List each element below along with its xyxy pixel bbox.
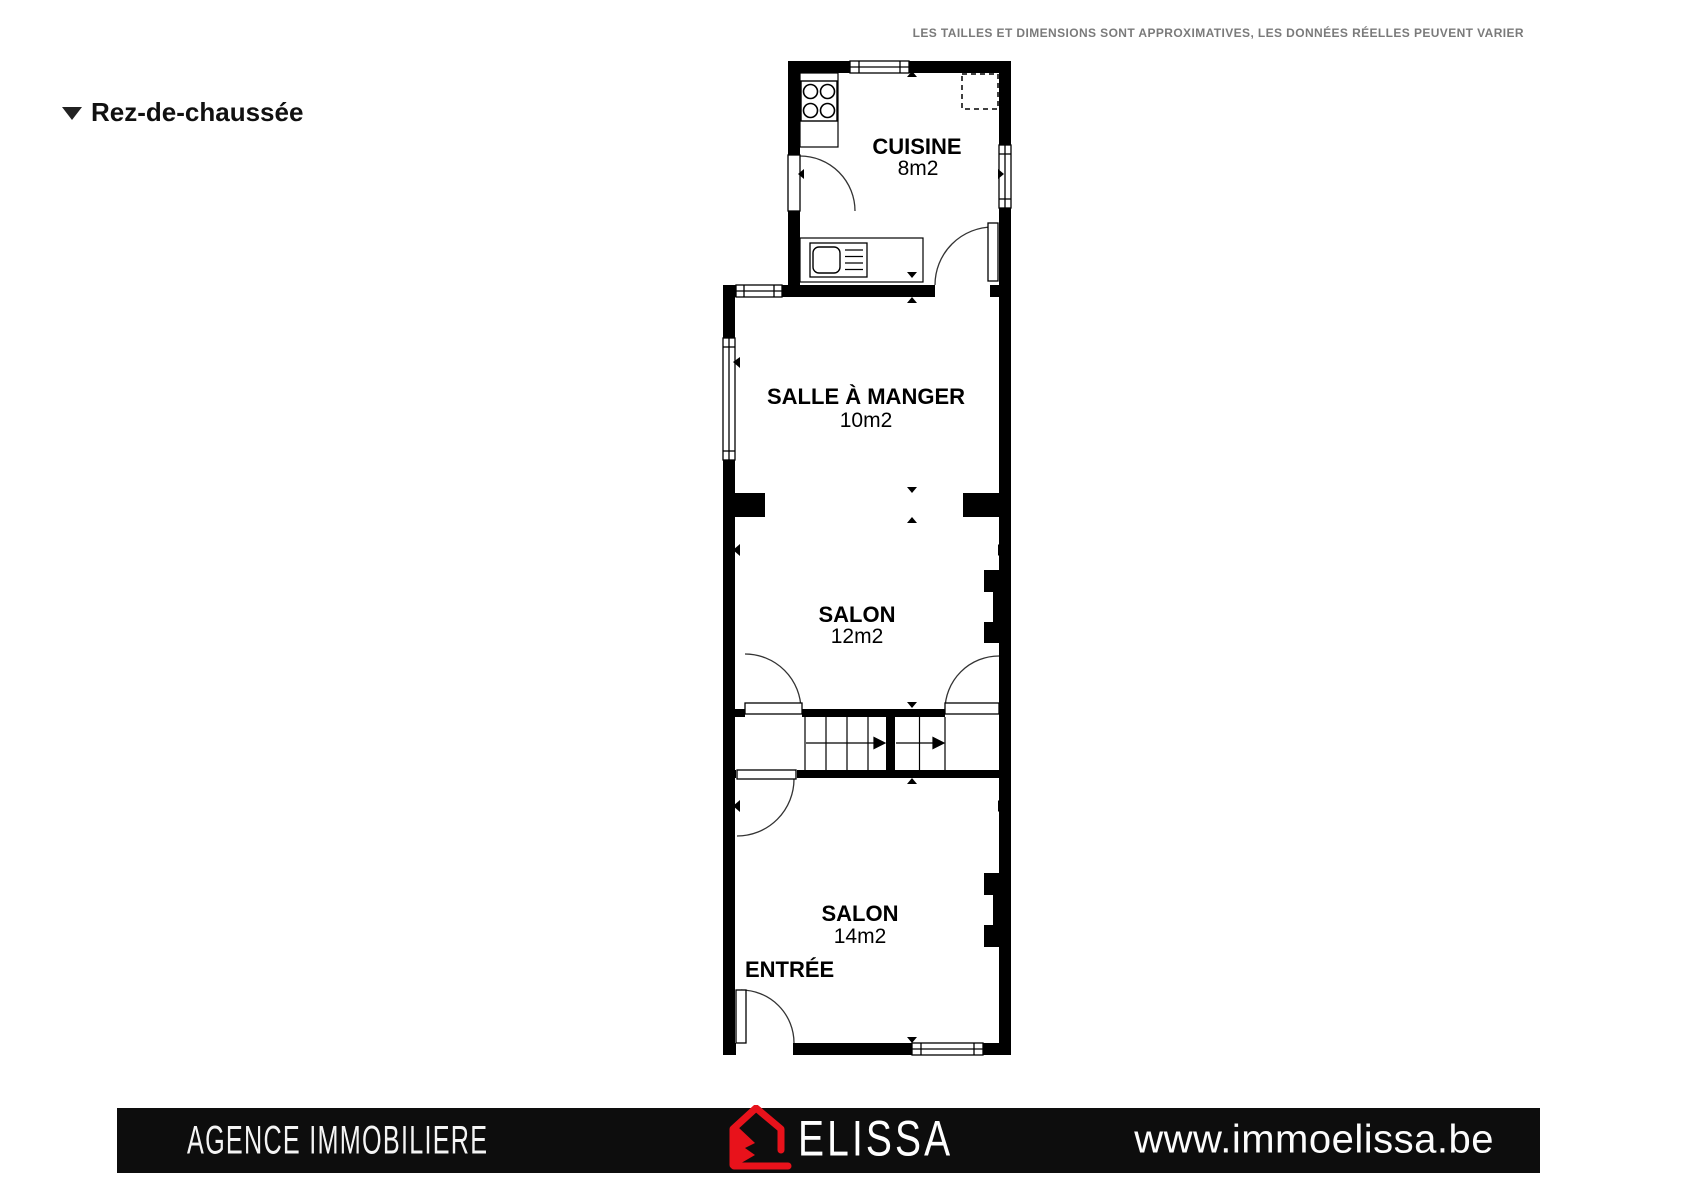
page: LES TAILLES ET DIMENSIONS SONT APPROXIMA… bbox=[0, 0, 1696, 1200]
brand-name: ELISSA bbox=[798, 1109, 953, 1167]
window-dining-left bbox=[723, 338, 735, 460]
stove-icon bbox=[800, 73, 838, 147]
boiler-dashed-icon bbox=[962, 74, 998, 109]
floor-plan: CUISINE 8m2 SALLE À MANGER 10m2 SALON 12… bbox=[0, 0, 1696, 1200]
section-markers bbox=[733, 71, 1004, 1043]
room-area-salon-14: 14m2 bbox=[834, 925, 887, 948]
website-url: www.immoelissa.be bbox=[1134, 1117, 1494, 1162]
footer-banner: AGENCE IMMOBILIERE ELISSA www.immoelissa… bbox=[117, 1108, 1540, 1173]
door-kitchen-dining bbox=[935, 223, 998, 285]
window-kitchen-top bbox=[850, 61, 909, 73]
window-entree-bottom bbox=[912, 1043, 983, 1055]
room-area-cuisine: 8m2 bbox=[898, 157, 939, 180]
sink-icon bbox=[800, 238, 923, 282]
chimney-salon-14 bbox=[981, 873, 1011, 947]
room-area-salon-12: 12m2 bbox=[831, 625, 884, 648]
chimney-salon-12 bbox=[982, 570, 1011, 643]
room-label-entree: ENTRÉE bbox=[745, 957, 834, 982]
agency-name: AGENCE IMMOBILIERE bbox=[187, 1118, 488, 1163]
elissa-house-logo-icon bbox=[727, 1105, 793, 1175]
room-label-cuisine: CUISINE bbox=[872, 134, 961, 159]
door-salon12-right bbox=[945, 656, 999, 714]
window-dining-top bbox=[736, 285, 782, 297]
door-kitchen-left bbox=[788, 155, 855, 211]
staircase bbox=[805, 717, 945, 770]
room-label-salon-14: SALON bbox=[822, 901, 899, 926]
door-corridor-salon14 bbox=[737, 770, 796, 836]
room-area-salle-a-manger: 10m2 bbox=[840, 409, 893, 432]
door-front-entrance bbox=[736, 990, 794, 1043]
door-salon12-left bbox=[745, 654, 802, 714]
room-label-salon-12: SALON bbox=[819, 602, 896, 627]
room-label-salle-a-manger: SALLE À MANGER bbox=[767, 384, 965, 409]
